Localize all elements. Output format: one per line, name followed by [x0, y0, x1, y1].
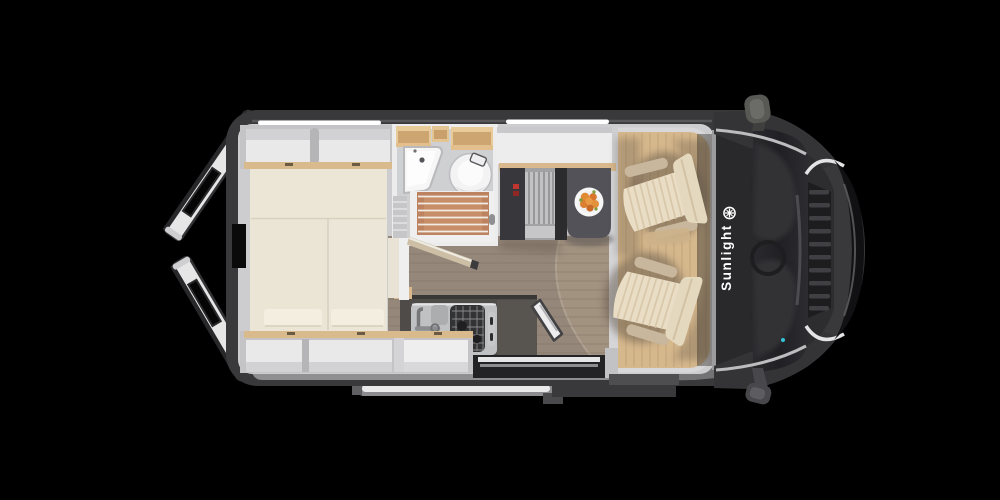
svg-text:Sunlight: Sunlight	[719, 224, 734, 291]
